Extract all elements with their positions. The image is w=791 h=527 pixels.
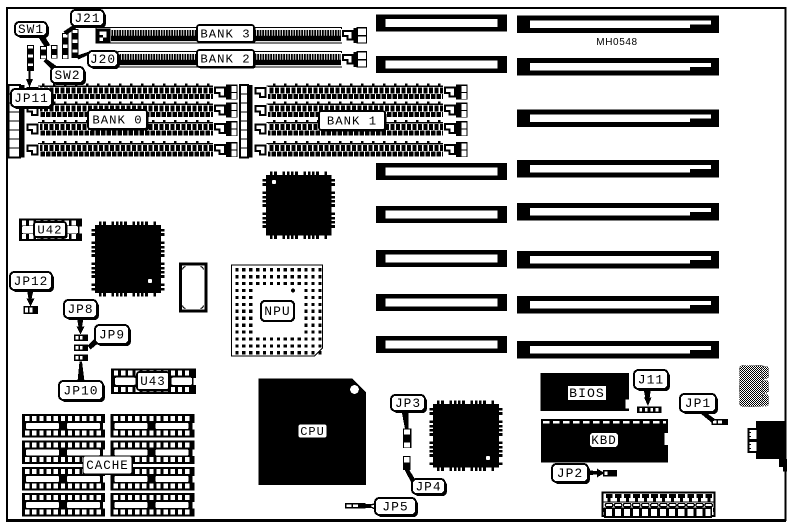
svg-text:JP12: JP12	[14, 274, 49, 289]
svg-text:KBD: KBD	[591, 434, 617, 448]
svg-text:BIOS: BIOS	[569, 386, 605, 401]
svg-text:BANK 3: BANK 3	[200, 28, 250, 42]
svg-text:NPU: NPU	[264, 304, 290, 319]
svg-text:BANK 0: BANK 0	[92, 114, 142, 128]
svg-text:BANK 2: BANK 2	[200, 53, 250, 67]
svg-text:JP1: JP1	[685, 396, 711, 411]
svg-text:JP10: JP10	[63, 384, 98, 399]
svg-text:JP3: JP3	[395, 396, 421, 411]
svg-text:JP4: JP4	[415, 480, 441, 495]
svg-text:JP11: JP11	[14, 91, 49, 106]
svg-text:CPU: CPU	[300, 425, 325, 439]
svg-text:J21: J21	[74, 11, 100, 26]
svg-text:U43: U43	[140, 375, 166, 389]
svg-text:U42: U42	[37, 224, 62, 238]
svg-text:JP9: JP9	[99, 328, 125, 343]
svg-text:J20: J20	[90, 52, 116, 67]
svg-text:CACHE: CACHE	[86, 459, 129, 473]
svg-text:SW1: SW1	[18, 22, 44, 37]
svg-text:JP5: JP5	[382, 500, 408, 515]
svg-text:JP2: JP2	[557, 466, 583, 481]
svg-text:JP8: JP8	[67, 302, 93, 317]
svg-text:BANK 1: BANK 1	[327, 115, 377, 129]
svg-text:SW2: SW2	[54, 68, 80, 83]
svg-text:MH0548: MH0548	[596, 37, 637, 48]
svg-text:J11: J11	[638, 373, 664, 388]
